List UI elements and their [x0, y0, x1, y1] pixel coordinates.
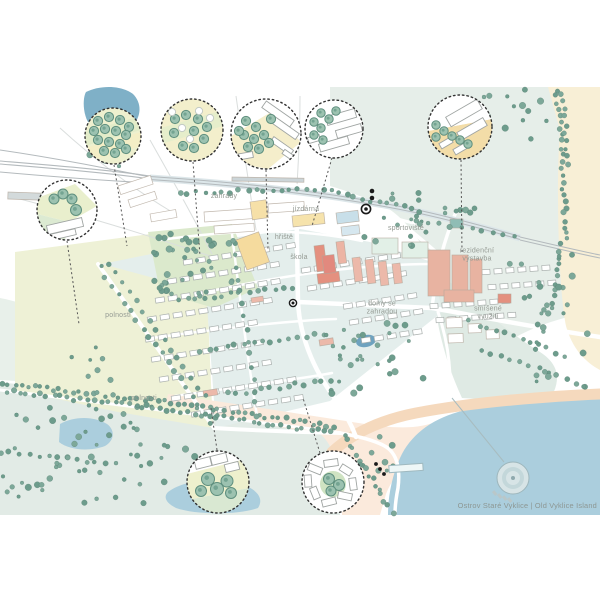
- label-rezidencni-vystavba: rezidenčnívýstavba: [460, 247, 494, 262]
- masterplan-map: [0, 0, 600, 600]
- tram-stop-icon: [289, 299, 296, 306]
- pier-stop-icon: [378, 467, 382, 471]
- callout-orchard: [85, 108, 141, 164]
- callout-station-meadow: [37, 180, 97, 241]
- train-station-icon: [361, 204, 370, 213]
- label-domy-se-zahradou: domy sezahradou: [367, 300, 398, 315]
- label-smisene-vyuziti: smíšenévyužití: [474, 305, 502, 320]
- masterplan-page: zahradyjízdárnahřištěškolasportovištěrez…: [0, 0, 600, 600]
- callout-industrial: [428, 95, 492, 159]
- map-caption: Ostrov Staré Vyklice | Old Vyklice Islan…: [458, 501, 597, 510]
- label-zahrady: zahrady: [211, 193, 237, 201]
- pier-stop-icon: [374, 462, 378, 466]
- island-structure: [497, 462, 529, 494]
- callout-gardens: [161, 99, 223, 161]
- label-polnosti-2: polnosti: [131, 395, 157, 403]
- callout-street-housing: [305, 100, 363, 158]
- label-skola: škola: [290, 254, 307, 262]
- label-sportoviste: sportoviště: [388, 225, 424, 233]
- label-jizdarna: jízdárna: [293, 206, 320, 214]
- pier-stop-icon: [382, 472, 386, 476]
- bus-stop-icon: [370, 196, 375, 201]
- label-hriste: hřiště: [275, 234, 293, 242]
- callout-courtyard-housing: [302, 451, 364, 513]
- callout-row-housing: [231, 99, 301, 169]
- label-polnosti-1: polnosti: [105, 312, 131, 320]
- callout-village-gardens: [187, 451, 249, 513]
- bus-stop-icon: [370, 189, 375, 194]
